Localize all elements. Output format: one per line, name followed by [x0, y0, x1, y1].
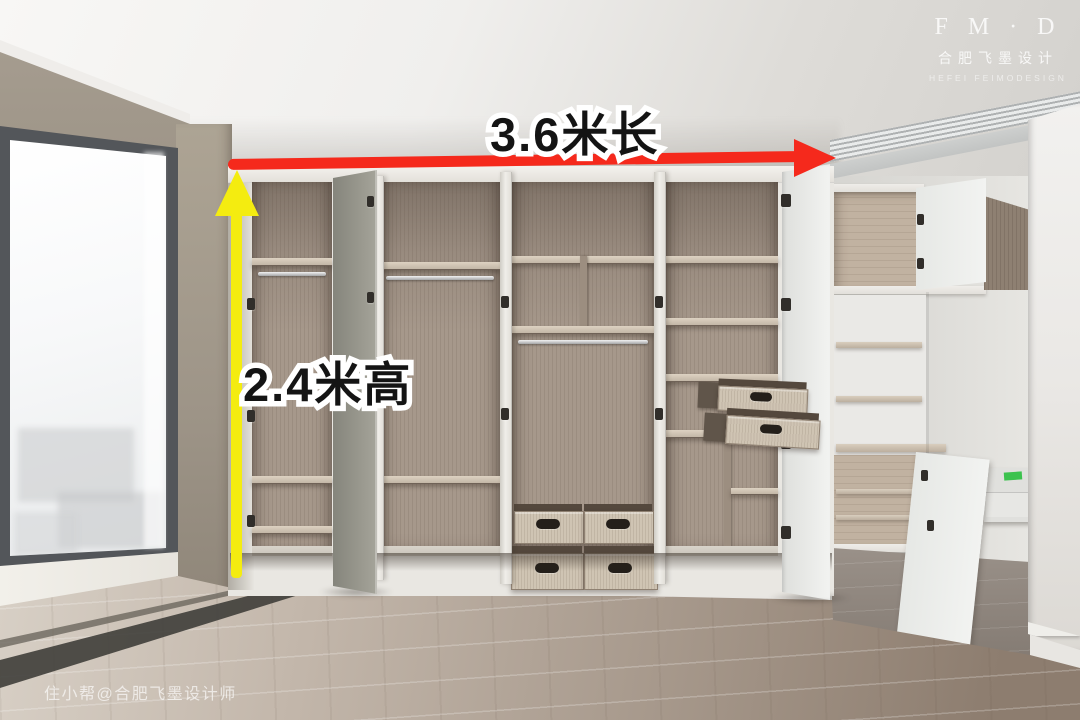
- walkin-corner-counter: [836, 444, 946, 452]
- hanging-rod: [258, 272, 326, 276]
- shelf: [252, 258, 332, 266]
- walkin-shelf: [836, 342, 922, 348]
- walkin-upper-right-interior: [984, 196, 1030, 290]
- width-dimension-label: 3.6米长 3.6米长: [490, 96, 659, 165]
- window-glare: [144, 152, 164, 548]
- shelf: [252, 476, 332, 484]
- window-building: [18, 428, 134, 502]
- door-hinge-icon: [921, 470, 928, 481]
- hanging-rod: [518, 340, 648, 344]
- drawer-handle[interactable]: [760, 424, 783, 434]
- wardrobe-section-4: [666, 182, 778, 556]
- walkin-shelf-bay: [834, 295, 926, 455]
- door-hinge-icon: [655, 408, 663, 420]
- height-dimension-label: 2.4米高 2.4米高: [243, 346, 412, 415]
- walkin-upper-cubby: [834, 190, 922, 288]
- cubby-divider: [724, 437, 731, 549]
- door-hinge-icon: [655, 296, 663, 308]
- brand-name-en: HEFEI FEIMODESIGN: [916, 73, 1080, 83]
- door-hinge-icon: [781, 298, 791, 311]
- wardrobe-section-3: [512, 182, 654, 556]
- door-hinge-icon: [247, 515, 255, 527]
- door-hinge-icon: [917, 214, 924, 225]
- window-building: [14, 512, 78, 556]
- bedroom-wardrobe-photo: 3.6米长 3.6米长 2.4米高 2.4米高 F M · D 合肥飞墨设计 H…: [0, 0, 1080, 720]
- width-arrow-head-icon: [794, 139, 836, 177]
- walkin-upper-door: [916, 178, 986, 290]
- wardrobe-floor-shadow: [230, 553, 832, 571]
- height-arrow-head-icon: [215, 170, 259, 216]
- right-wall: [1028, 104, 1080, 650]
- shelf: [252, 526, 332, 534]
- wardrobe-divider: [654, 172, 666, 584]
- cubby-divider: [580, 256, 587, 333]
- door-hinge-icon: [917, 258, 924, 269]
- shelf: [512, 326, 654, 334]
- height-arrow: [231, 212, 242, 578]
- open-drawer[interactable]: [703, 407, 819, 452]
- wardrobe-divider: [500, 172, 512, 584]
- door-hinge-icon: [367, 292, 374, 303]
- shelf: [666, 256, 778, 264]
- open-drawer[interactable]: [584, 504, 652, 544]
- drawer-handle[interactable]: [536, 519, 560, 529]
- hanging-rod: [386, 276, 494, 280]
- green-level-tool: [1004, 471, 1023, 480]
- door-hinge-icon: [247, 298, 255, 310]
- door-hinge-icon: [367, 196, 374, 207]
- brand-initials: F M · D: [916, 14, 1080, 41]
- window-glass: [10, 140, 166, 556]
- drawer-handle[interactable]: [750, 392, 772, 402]
- walkin-low-unit-drawer: [986, 492, 1030, 517]
- open-drawer[interactable]: [514, 504, 582, 544]
- brand-name-cn: 合肥飞墨设计: [916, 48, 1080, 68]
- door-hinge-icon: [781, 526, 791, 539]
- door-hinge-icon: [781, 194, 791, 207]
- shelf: [666, 318, 778, 326]
- walkin-shelf: [836, 396, 922, 402]
- door-hinge-icon: [927, 520, 934, 531]
- door-hinge-icon: [501, 296, 509, 308]
- drawer-handle[interactable]: [606, 519, 630, 529]
- credit-watermark: 住小帮@合肥飞墨设计师: [44, 680, 237, 704]
- door-hinge-icon: [501, 408, 509, 420]
- brand-watermark: F M · D 合肥飞墨设计 HEFEI FEIMODESIGN: [916, 14, 1080, 92]
- walkin-upper-frame: [832, 184, 924, 192]
- shelf: [380, 476, 500, 484]
- shelf: [731, 488, 778, 495]
- shelf: [380, 262, 500, 270]
- walkin-upper-shelf: [832, 286, 986, 294]
